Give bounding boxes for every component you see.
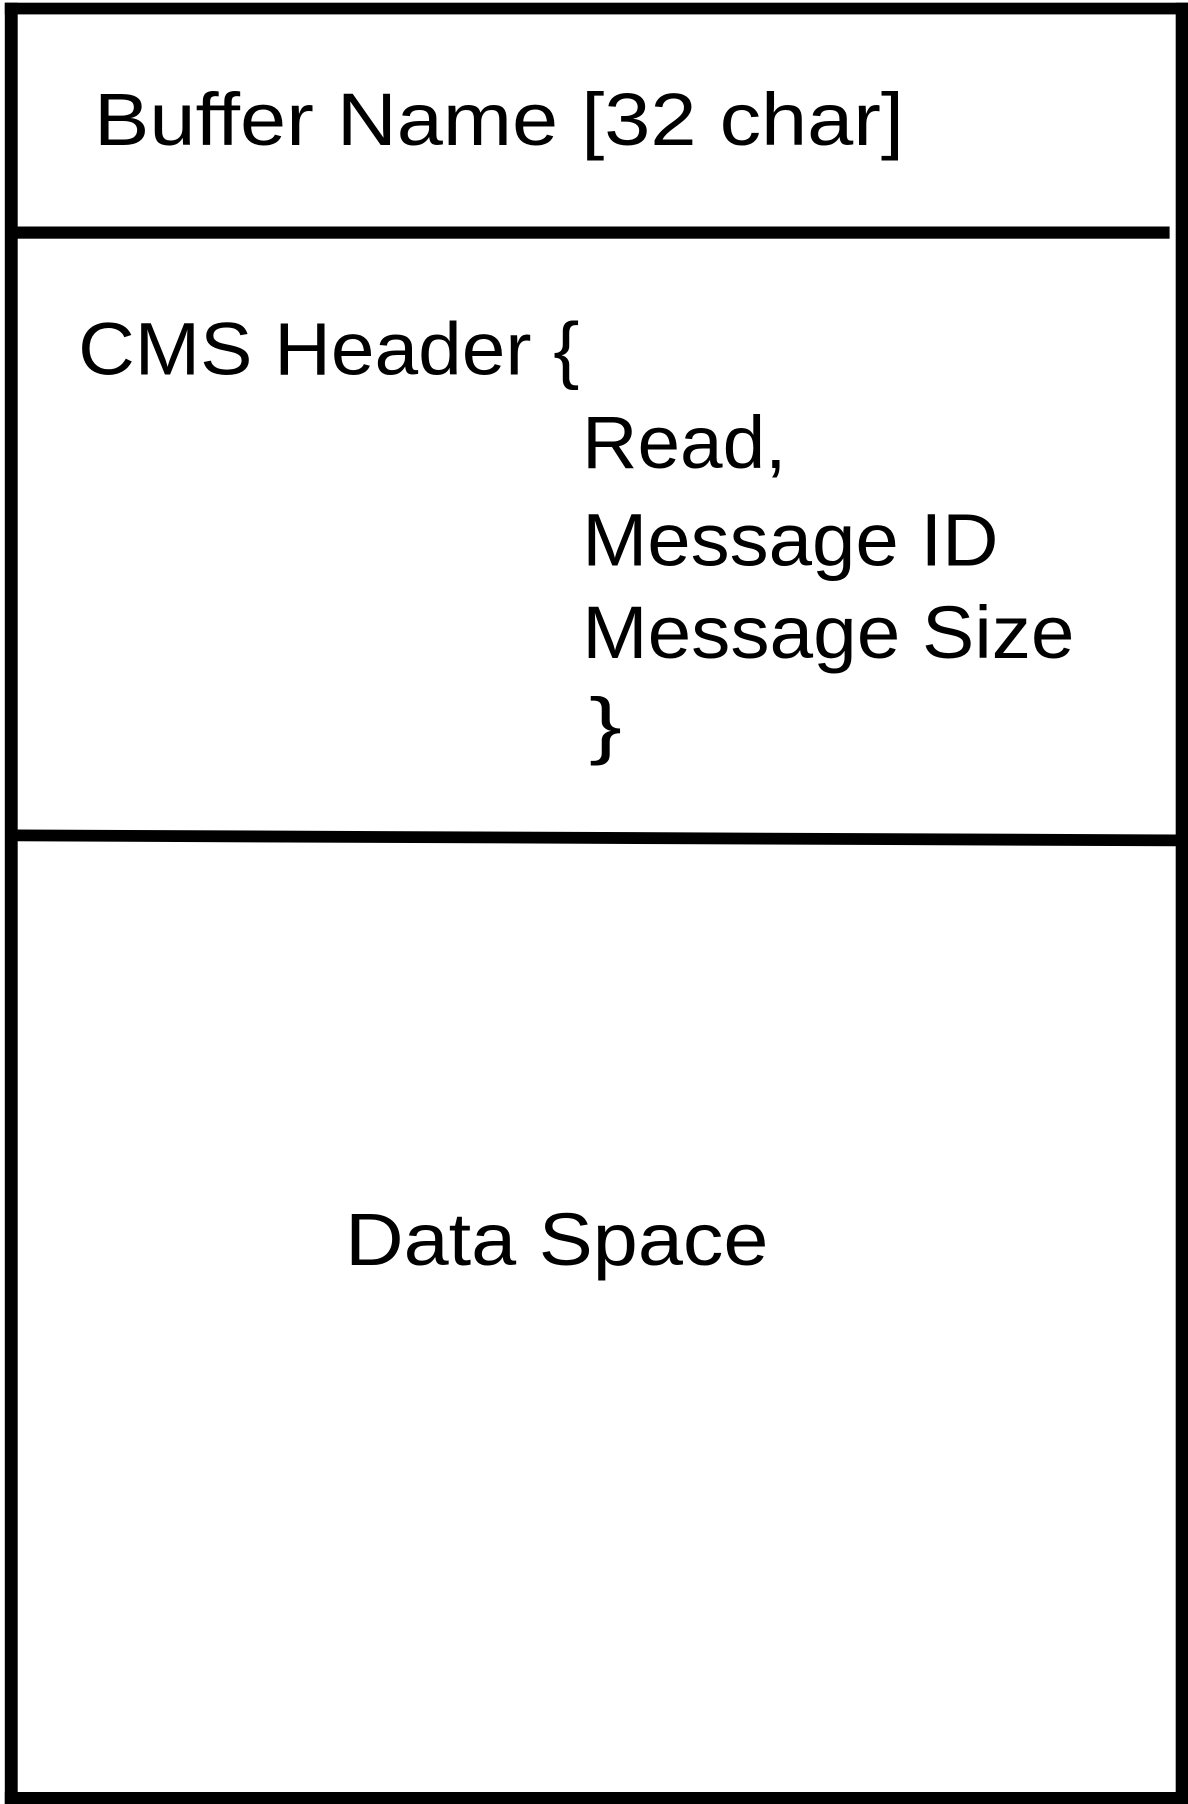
svg-text:Data Space: Data Space [345, 1198, 768, 1281]
svg-text:Message ID: Message ID [582, 499, 998, 582]
svg-text:Message Size: Message Size [582, 591, 1074, 674]
svg-text:Buffer Name [32 char]: Buffer Name [32 char] [94, 78, 904, 161]
svg-text:Read,: Read, [582, 401, 786, 484]
svg-text:CMS Header {: CMS Header { [78, 308, 579, 391]
svg-text:}: } [589, 683, 622, 766]
